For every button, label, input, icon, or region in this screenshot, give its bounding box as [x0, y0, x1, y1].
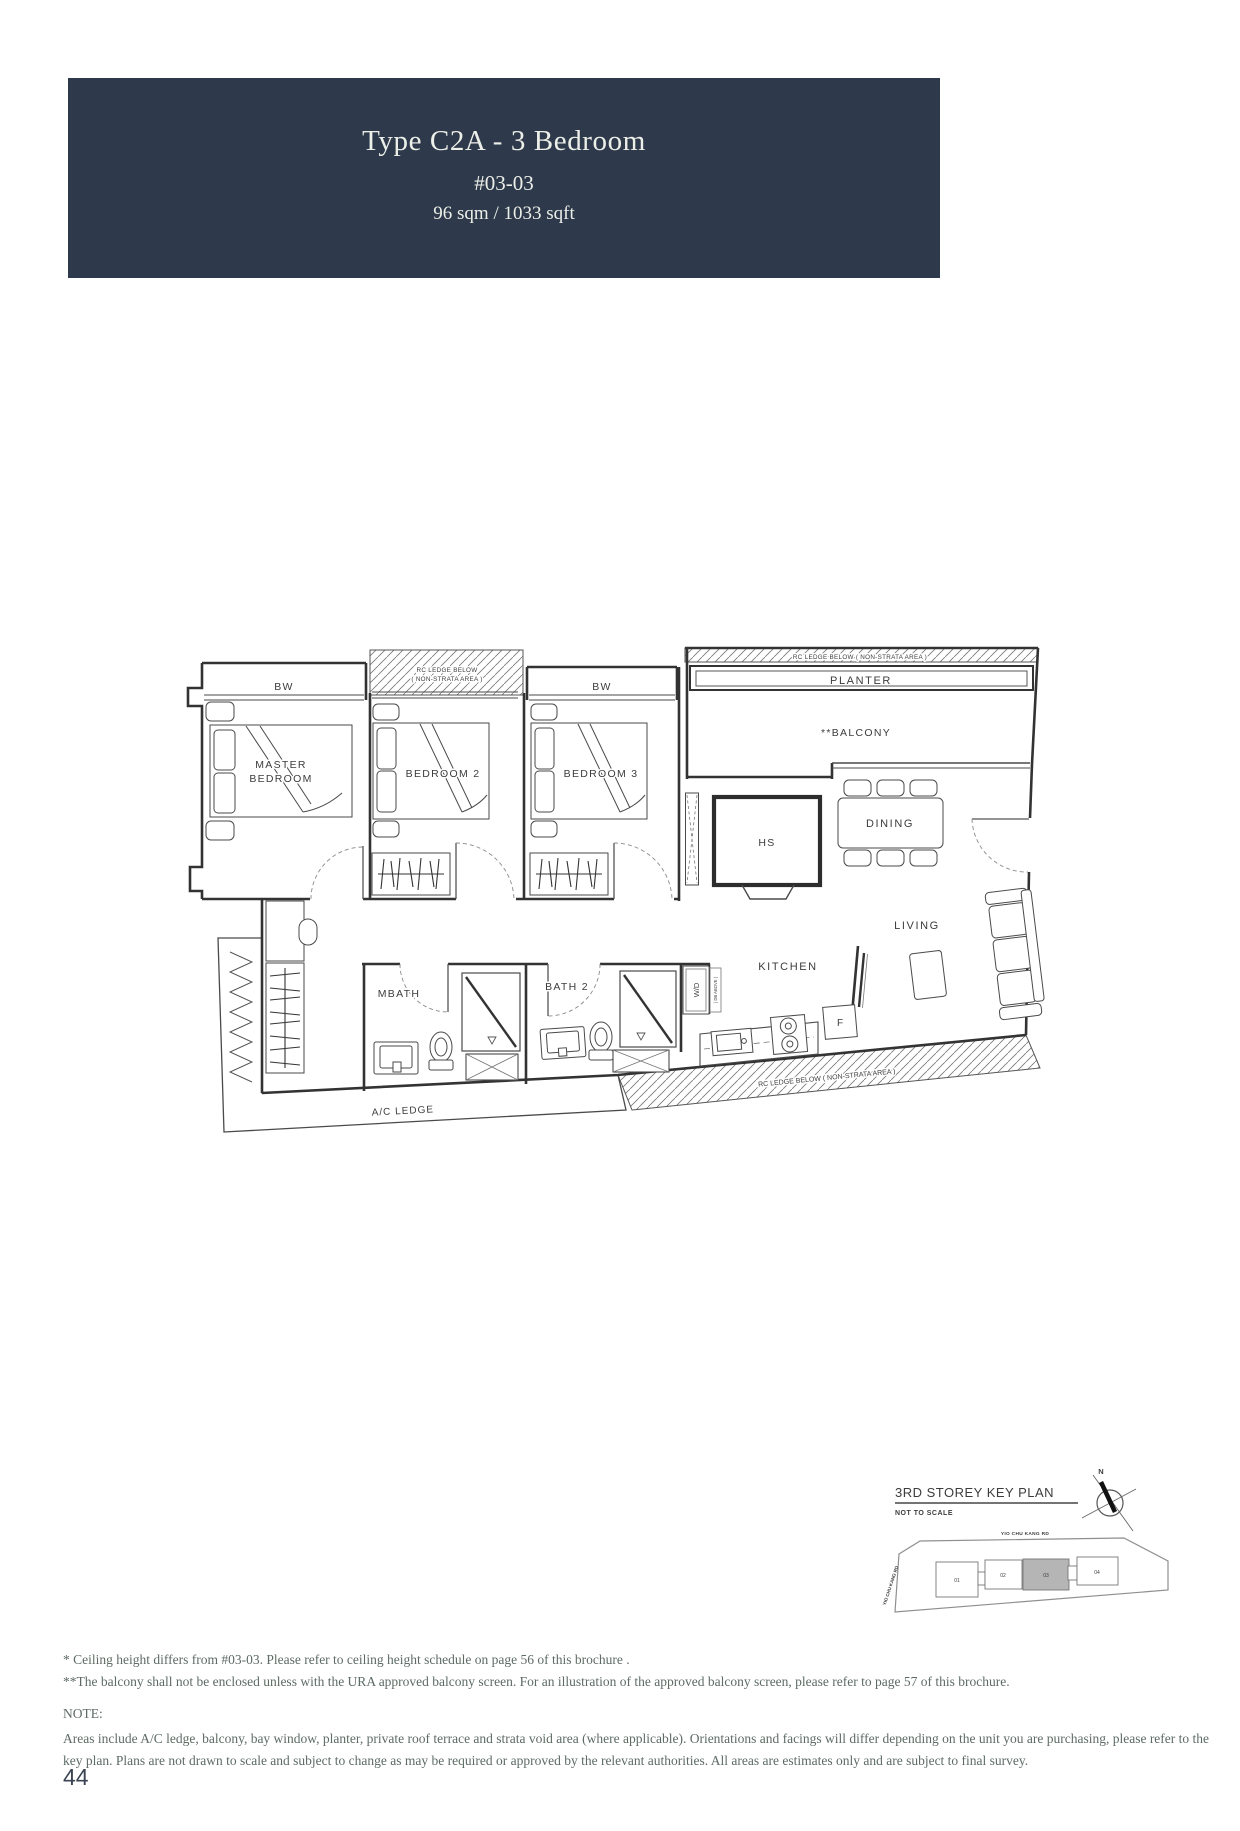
note-heading: NOTE: — [63, 1706, 103, 1722]
key-plan: 3RD STOREY KEY PLAN NOT TO SCALE N YIO C… — [855, 1458, 1185, 1658]
title-block: Type C2A - 3 Bedroom #03-03 96 sqm / 103… — [68, 78, 940, 278]
block-label-02: 02 — [1000, 1573, 1006, 1579]
sofa-icon — [985, 887, 1046, 1020]
walls — [188, 648, 1038, 1093]
footnote-balcony: **The balcony shall not be enclosed unle… — [63, 1674, 1010, 1690]
label-mbath: MBATH — [378, 988, 420, 1000]
label-rc-ledge-top-2: ( NON-STRATA AREA ) — [411, 676, 482, 683]
tv-console-icon — [852, 946, 868, 1014]
master-wardrobe-icon — [266, 901, 317, 1073]
label-dining: DINING — [866, 818, 914, 830]
shoe-cabinet-icon — [686, 793, 699, 885]
label-wd: W/D — [692, 982, 701, 997]
label-master-1: MASTER — [255, 759, 307, 771]
label-hs: HS — [758, 837, 775, 849]
label-balcony: **BALCONY — [821, 727, 891, 739]
key-plan-subtitle: NOT TO SCALE — [895, 1510, 953, 1517]
sink-icon — [711, 1028, 753, 1055]
label-master-2: BEDROOM — [249, 773, 312, 785]
footnote-ceiling: * Ceiling height differs from #03-03. Pl… — [63, 1652, 630, 1668]
master-bed-icon — [206, 702, 352, 840]
label-living: LIVING — [894, 920, 940, 932]
block-label-04: 04 — [1094, 1570, 1100, 1576]
block-label-03: 03 — [1043, 1573, 1049, 1579]
unit-area: 96 sqm / 1033 sqft — [68, 203, 940, 225]
label-bw-master: BW — [274, 681, 294, 693]
block-label-01: 01 — [954, 1578, 960, 1584]
page-number: 44 — [63, 1764, 89, 1791]
label-bw-bedroom3: BW — [592, 681, 612, 693]
label-bedroom2: BEDROOM 2 — [406, 768, 481, 780]
label-planter: PLANTER — [830, 675, 892, 687]
label-bath2: BATH 2 — [545, 981, 589, 993]
note-body: Areas include A/C ledge, balcony, bay wi… — [63, 1728, 1223, 1771]
unit-number: #03-03 — [68, 171, 940, 196]
label-fridge: F — [837, 1018, 843, 1029]
label-bedroom3: BEDROOM 3 — [564, 768, 639, 780]
label-rc-ledge-top-1: RC LEDGE BELOW — [417, 667, 478, 674]
key-plan-blocks — [936, 1557, 1118, 1597]
compass-icon: N — [1082, 1467, 1136, 1531]
road-label-top: YIO CHU KANG RD — [1001, 1531, 1049, 1537]
key-plan-title: 3RD STOREY KEY PLAN — [895, 1485, 1054, 1500]
bedroom2-wardrobe-icon — [372, 853, 450, 895]
coffee-table-icon — [909, 950, 946, 1000]
bedroom3-wardrobe-icon — [530, 853, 608, 895]
label-rc-ledge-planter: RC LEDGE BELOW ( NON-STRATA AREA ) — [793, 654, 927, 661]
floor-plan: BW RC LEDGE BELOW ( NON-STRATA AREA ) BW… — [150, 640, 1050, 1150]
hob-icon — [770, 1015, 807, 1055]
compass-north-label: N — [1098, 1467, 1103, 1476]
label-db-above: ( DB ABOVE ) — [713, 976, 718, 1003]
unit-type-title: Type C2A - 3 Bedroom — [68, 125, 940, 158]
label-kitchen: KITCHEN — [758, 961, 817, 973]
